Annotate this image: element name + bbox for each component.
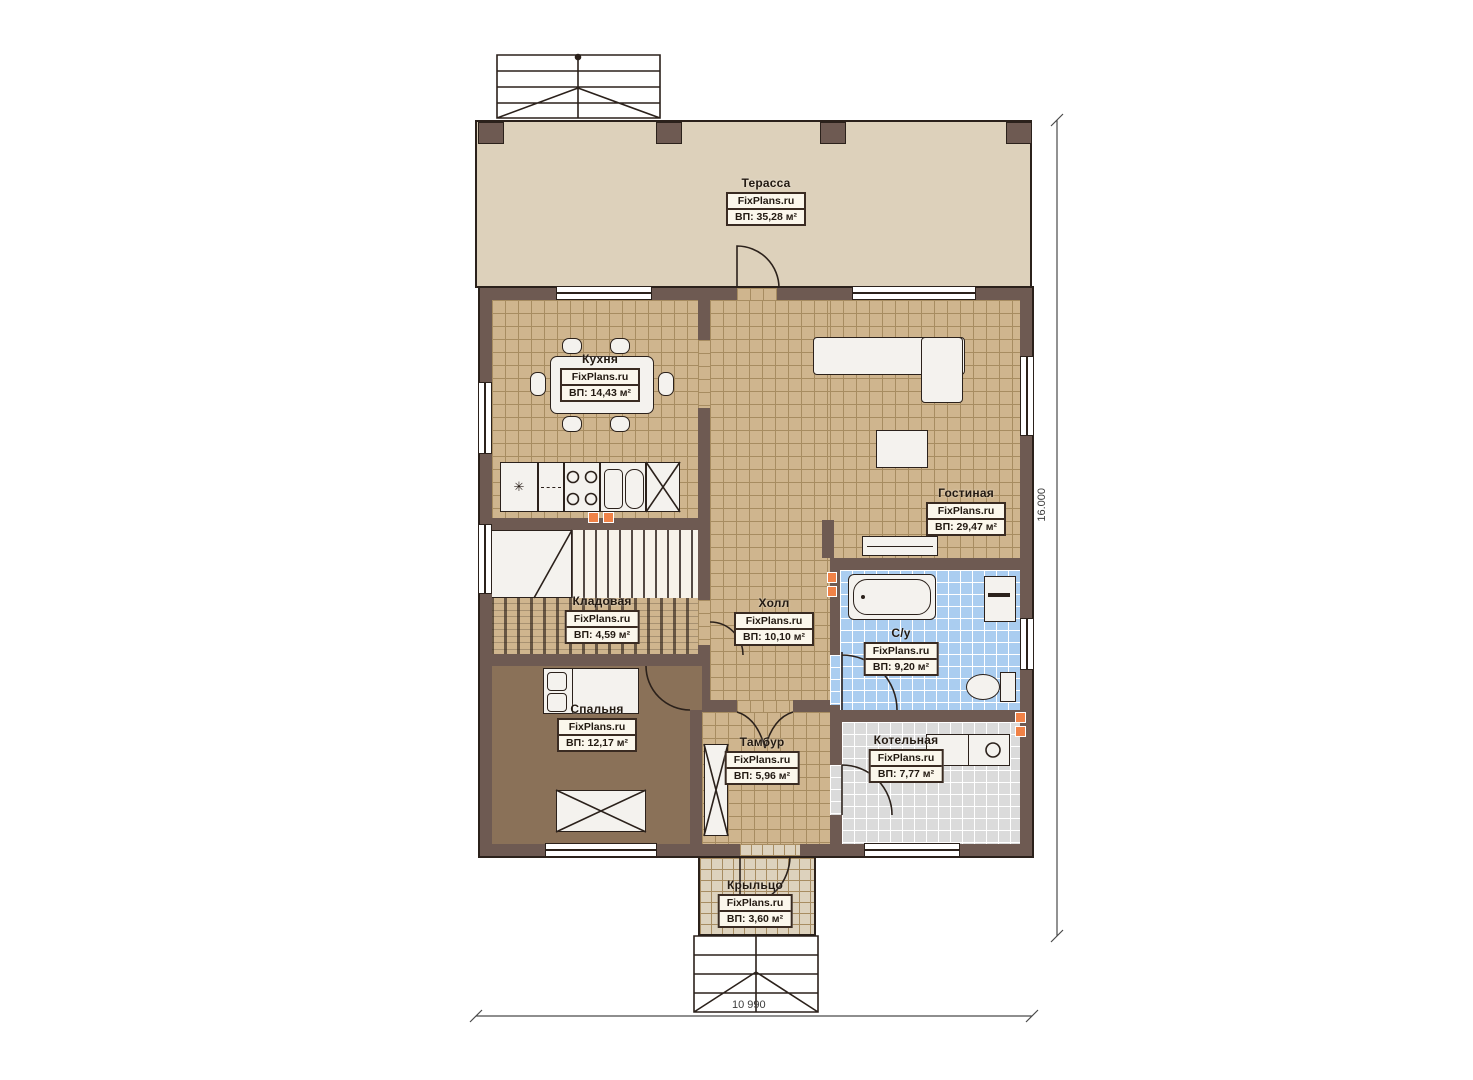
counter-line xyxy=(541,487,561,488)
tv-stand xyxy=(862,536,938,556)
coffee-table xyxy=(876,430,928,468)
sink-basin xyxy=(604,469,623,509)
room-label-bedroom: Спальня FixPlans.ru ВП: 12,17 м² xyxy=(557,702,637,752)
stair-landing xyxy=(492,530,572,598)
vent-marker xyxy=(827,586,837,597)
washbasin-tap xyxy=(988,593,1010,597)
toilet-bowl xyxy=(966,674,1000,700)
sink-basin xyxy=(625,469,644,509)
terrace-column xyxy=(1006,122,1032,144)
room-label-porch: Крыльцо FixPlans.ru ВП: 3,60 м² xyxy=(718,878,793,928)
vent-marker xyxy=(588,512,599,523)
dimension-line-right xyxy=(1051,114,1063,942)
boiler-divider xyxy=(968,735,969,765)
window xyxy=(852,286,976,300)
room-label-hall: Холл FixPlans.ru ВП: 10,10 м² xyxy=(734,596,814,646)
room-name: Спальня xyxy=(557,702,637,716)
vestibule-door-opening xyxy=(737,700,793,712)
room-label-vestibule: Тамбур FixPlans.ru ВП: 5,96 м² xyxy=(725,735,800,785)
room-area: ВП: 29,47 м² xyxy=(928,520,1004,534)
room-name: Гостиная xyxy=(926,486,1006,500)
brand-text: FixPlans.ru xyxy=(871,751,942,767)
vent-marker xyxy=(603,512,614,523)
chair xyxy=(610,416,630,432)
room-area: ВП: 5,96 м² xyxy=(727,769,798,783)
room-label-bathroom: С/у FixPlans.ru ВП: 9,20 м² xyxy=(864,626,939,676)
tv-stand-line xyxy=(867,546,933,547)
kitchen-counter xyxy=(538,462,564,512)
vent-marker xyxy=(1015,726,1026,737)
room-name: Тамбур xyxy=(725,735,800,749)
chair xyxy=(530,372,546,396)
room-area: ВП: 3,60 м² xyxy=(720,912,791,926)
bathtub xyxy=(848,574,936,620)
brand-text: FixPlans.ru xyxy=(562,370,638,386)
fridge: ✳ xyxy=(500,462,538,512)
window xyxy=(864,843,960,857)
dimension-right-value: 16.000 xyxy=(1036,488,1048,522)
room-area: ВП: 14,43 м² xyxy=(562,386,638,400)
room-area: ВП: 9,20 м² xyxy=(866,660,937,674)
room-area: ВП: 4,59 м² xyxy=(567,628,638,642)
room-name: Котельная xyxy=(869,733,944,747)
brand-text: FixPlans.ru xyxy=(736,614,812,630)
kitchen-hall-opening xyxy=(698,340,710,408)
terrace-door-opening xyxy=(737,288,777,300)
window xyxy=(1020,356,1034,436)
stove xyxy=(564,462,600,512)
room-name: Кухня xyxy=(560,352,640,366)
cabinet xyxy=(646,462,680,512)
sofa-chaise xyxy=(921,337,963,403)
toilet-tank xyxy=(1000,672,1016,702)
vent-marker xyxy=(1015,712,1026,723)
room-area: ВП: 10,10 м² xyxy=(736,630,812,644)
room-label-boiler: Котельная FixPlans.ru ВП: 7,77 м² xyxy=(869,733,944,783)
wall-stub xyxy=(822,520,834,558)
chair xyxy=(562,416,582,432)
chair xyxy=(658,372,674,396)
terrace-column xyxy=(820,122,846,144)
room-area: ВП: 12,17 м² xyxy=(559,736,635,750)
floor-plan: ✳ xyxy=(0,0,1473,1080)
room-label-kitchen: Кухня FixPlans.ru ВП: 14,43 м² xyxy=(560,352,640,402)
room-name: Холл xyxy=(734,596,814,610)
window xyxy=(478,524,492,594)
window xyxy=(556,286,652,300)
boiler-door-opening xyxy=(830,765,842,815)
pantry-door-opening xyxy=(698,600,710,645)
wardrobe xyxy=(556,790,646,832)
room-name: Терасса xyxy=(726,176,806,190)
room-name: Крыльцо xyxy=(718,878,793,892)
terrace-steps xyxy=(497,55,660,119)
brand-text: FixPlans.ru xyxy=(720,896,791,912)
washbasin xyxy=(984,576,1016,622)
room-area: ВП: 35,28 м² xyxy=(728,210,804,224)
room-name: Кладовая xyxy=(565,594,640,608)
terrace-column xyxy=(478,122,504,144)
room-label-living: Гостиная FixPlans.ru ВП: 29,47 м² xyxy=(926,486,1006,536)
room-name: С/у xyxy=(864,626,939,640)
brand-text: FixPlans.ru xyxy=(559,720,635,736)
bathtub-drain xyxy=(861,595,865,599)
brand-text: FixPlans.ru xyxy=(567,612,638,628)
window xyxy=(1020,618,1034,670)
room-area: ВП: 7,77 м² xyxy=(871,767,942,781)
window xyxy=(545,843,657,857)
brand-text: FixPlans.ru xyxy=(727,753,798,769)
dimension-bottom-value: 10 990 xyxy=(732,999,766,1011)
bathroom-door-opening xyxy=(830,655,840,705)
porch-door-opening xyxy=(740,844,800,856)
window xyxy=(478,382,492,454)
room-label-terrace: Терасса FixPlans.ru ВП: 35,28 м² xyxy=(726,176,806,226)
dimension-line-bottom xyxy=(470,1010,1038,1022)
terrace-column xyxy=(656,122,682,144)
brand-text: FixPlans.ru xyxy=(728,194,804,210)
brand-text: FixPlans.ru xyxy=(866,644,937,660)
room-label-pantry: Кладовая FixPlans.ru ВП: 4,59 м² xyxy=(565,594,640,644)
bedroom-door-opening xyxy=(690,666,702,710)
pillow xyxy=(547,672,567,691)
vent-marker xyxy=(827,572,837,583)
brand-text: FixPlans.ru xyxy=(928,504,1004,520)
snowflake-icon: ✳ xyxy=(501,463,537,511)
kitchen-sink xyxy=(600,462,646,512)
